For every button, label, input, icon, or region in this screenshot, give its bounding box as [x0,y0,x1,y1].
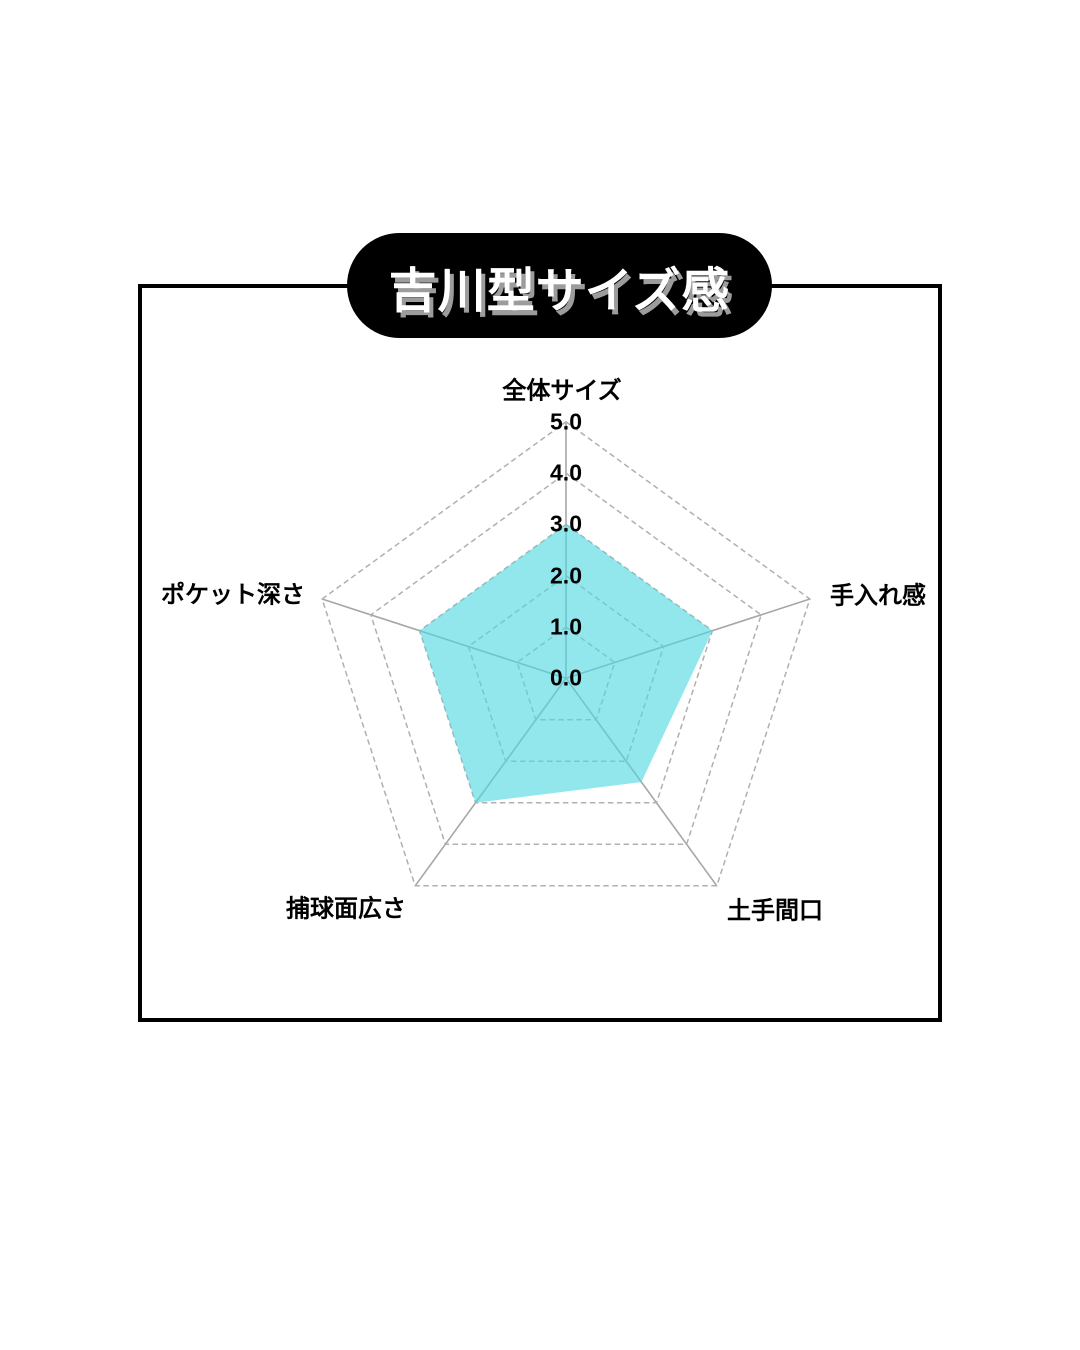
radial-tick-label: 3.0 [550,513,582,536]
radar-chart [0,0,1080,1350]
axis-label-heel-opening: 土手間口 [727,891,823,926]
axis-label-catch-face-width: 捕球面広さ [286,889,406,924]
title-pill: 吉川型サイズ感 [347,233,772,338]
axis-label-overall-size: 全体サイズ [502,371,621,406]
radial-tick-label: 5.0 [550,410,582,433]
radial-tick-label: 4.0 [550,462,582,485]
radial-tick-label: 2.0 [550,564,582,587]
radial-tick-label: 0.0 [550,667,582,690]
radial-tick-label: 1.0 [550,616,582,639]
axis-label-pocket-depth: ポケット深さ [161,575,305,610]
infographic-canvas: 吉川型サイズ感 全体サイズ 手入れ感 土手間口 捕球面広さ ポケット深さ 0.0… [0,0,1080,1350]
axis-label-care-feel: 手入れ感 [830,576,926,611]
page-title: 吉川型サイズ感 [389,251,731,321]
